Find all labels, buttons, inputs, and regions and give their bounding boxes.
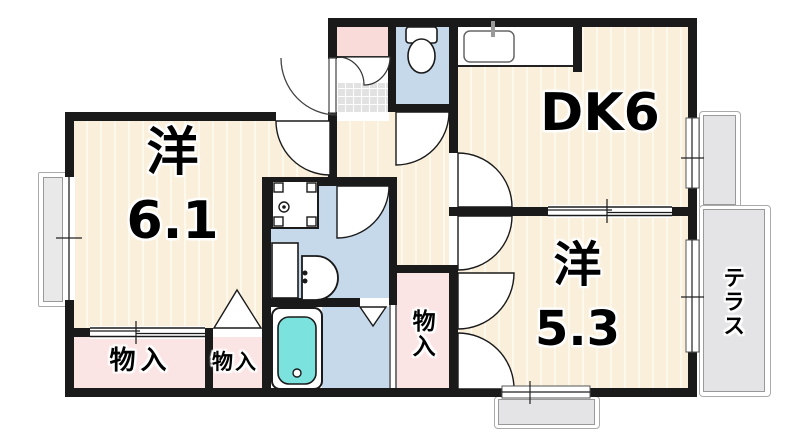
wall (389, 265, 458, 273)
toilet-room-floor (396, 27, 449, 104)
wall (65, 112, 276, 121)
wall (688, 18, 697, 118)
wall (328, 18, 697, 27)
floorplan-canvas: 洋 6.1 DK6 洋 5.3 物入 物入 物入 テラス (0, 0, 800, 446)
wall (65, 300, 74, 397)
storage-left-label: 物入 (88, 348, 193, 375)
wall (65, 328, 90, 337)
shoe-cabinet-doors-arc (338, 57, 390, 85)
wall (672, 207, 688, 216)
bath-unit-partition (389, 305, 397, 388)
hallway-floor (337, 121, 389, 179)
wall (65, 388, 502, 397)
wall (389, 177, 397, 305)
front-door-leaf (329, 58, 336, 113)
bathroom-floor (322, 307, 389, 388)
room-label-western-61-size: 6.1 (90, 194, 255, 249)
wall (449, 207, 548, 216)
sliding-door-lines (90, 328, 205, 337)
step-area (498, 399, 595, 425)
wall (65, 112, 74, 177)
wall (388, 104, 458, 112)
balcony-upper (703, 115, 736, 205)
bathtub-room-floor (271, 307, 322, 388)
room-label-western-53-kanji: 洋 (495, 240, 660, 290)
washroom-floor (271, 186, 389, 298)
wall (262, 298, 360, 307)
wall (449, 18, 458, 153)
storage-center-label: 物入 (206, 351, 264, 373)
wall (262, 177, 397, 186)
wall (590, 388, 697, 397)
front-door-arc (281, 58, 337, 115)
room-label-western-61-kanji: 洋 (90, 126, 255, 181)
wall (328, 18, 337, 59)
hallway-floor-east (389, 112, 449, 265)
room-label-dk: DK6 (520, 86, 680, 141)
sliding-door-lines (548, 207, 672, 216)
left-window-sill (43, 177, 63, 302)
storage-hall-label: 物入 (409, 298, 433, 370)
terrace-label: テラス (720, 252, 743, 352)
room-label-western-53-size: 5.3 (495, 304, 660, 354)
wall (688, 188, 697, 240)
wall (449, 268, 458, 397)
wall (573, 27, 582, 72)
wall (388, 18, 396, 112)
entrance-tile-genkan (337, 83, 389, 113)
shoe-cabinet (337, 27, 389, 58)
wall (688, 352, 697, 397)
wall (328, 112, 337, 186)
